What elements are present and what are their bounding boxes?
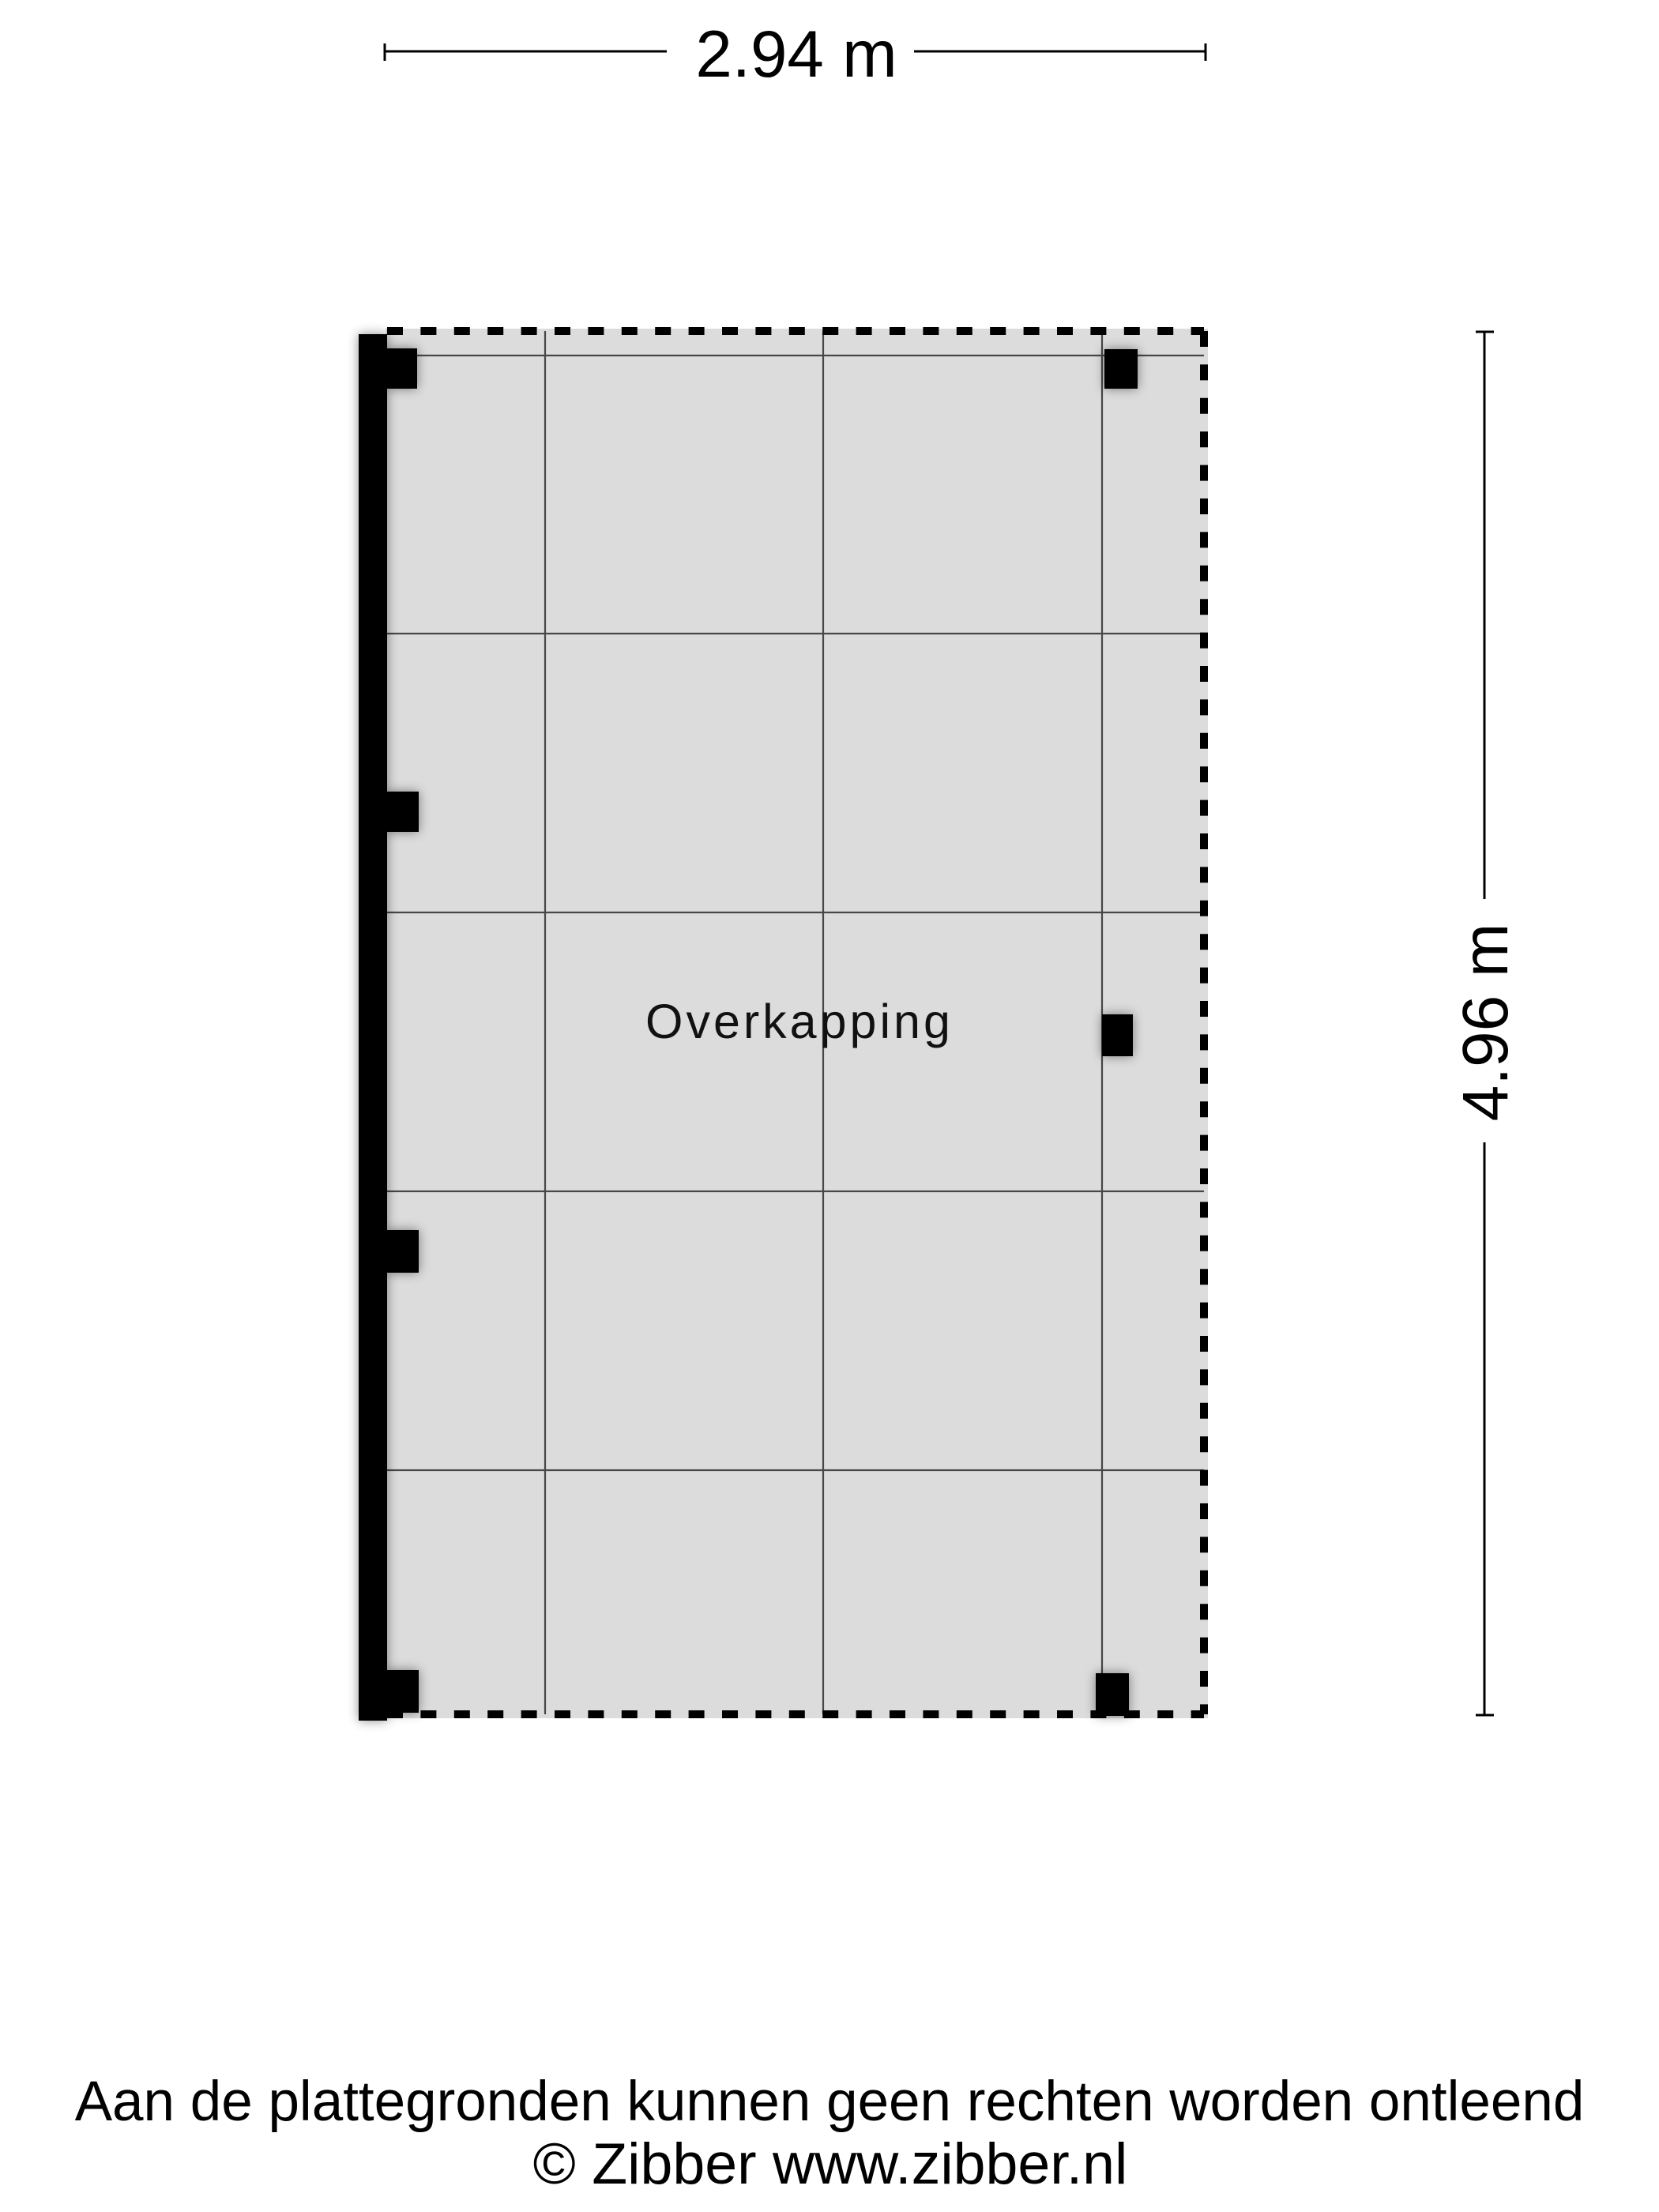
- svg-text:4.96 m: 4.96 m: [1450, 924, 1522, 1122]
- svg-text:2.94 m: 2.94 m: [695, 17, 897, 91]
- svg-text:Overkapping: Overkapping: [645, 995, 954, 1048]
- svg-text:© Zibber www.zibber.nl: © Zibber www.zibber.nl: [533, 2131, 1128, 2196]
- svg-text:Aan de plattegronden kunnen ge: Aan de plattegronden kunnen geen rechten…: [75, 2071, 1585, 2133]
